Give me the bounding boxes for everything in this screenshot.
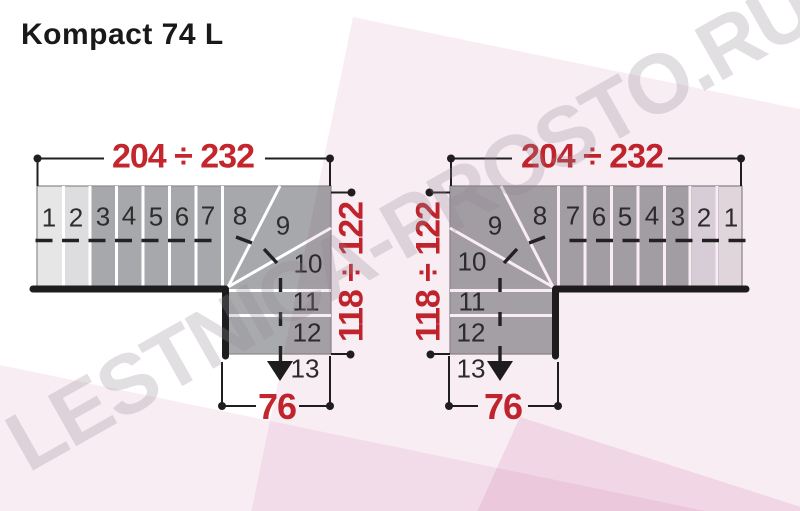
right-step-label-7: 7 <box>566 201 580 232</box>
right-step-label-2: 2 <box>697 203 711 234</box>
left-step-label-3: 3 <box>96 202 110 233</box>
left-height-dimension: 118 ÷ 122 <box>333 202 372 342</box>
dimension-endpoint-dot <box>326 155 334 163</box>
left-width-dimension: 204 ÷ 232 <box>112 138 254 177</box>
dimension-endpoint-dot <box>348 189 356 197</box>
dimension-endpoint-dot <box>326 402 334 410</box>
dimension-endpoint-dot <box>34 155 42 163</box>
left-step-label-7: 7 <box>201 201 215 232</box>
right-step-label-5: 5 <box>618 202 632 233</box>
left-step1-tread <box>37 186 62 287</box>
left-step-label-12: 12 <box>293 318 322 349</box>
left-step-label-4: 4 <box>122 201 136 232</box>
right-step-label-11: 11 <box>459 287 486 318</box>
dimension-endpoint-dot <box>554 402 562 410</box>
left-direction-arrow-icon <box>267 361 293 381</box>
stair-plan-canvas: 1 2 3 4 5 6 7 8 9 10 11 12 13 204 ÷ 232 … <box>0 0 800 511</box>
dimension-endpoint-dot <box>427 351 435 359</box>
left-step2-tread <box>65 186 89 287</box>
left-step-label-11: 11 <box>293 287 320 318</box>
right-step-label-13: 13 <box>457 354 486 385</box>
right-step2-tread <box>692 186 716 287</box>
right-step-label-6: 6 <box>592 202 606 233</box>
left-exit-dimension: 76 <box>258 386 296 428</box>
right-height-dimension: 118 ÷ 122 <box>410 202 449 342</box>
right-direction-arrow-icon <box>487 361 513 381</box>
left-wall-line <box>33 289 226 356</box>
left-step-label-9: 9 <box>276 211 290 242</box>
right-step-label-9: 9 <box>488 211 502 242</box>
right-exit-dimension: 76 <box>484 386 522 428</box>
dimension-endpoint-dot <box>426 189 434 197</box>
left-step-label-10: 10 <box>294 249 323 280</box>
left-step-label-8: 8 <box>233 201 247 232</box>
right-step-label-3: 3 <box>671 202 685 233</box>
page-title: Kompact 74 L <box>21 18 224 52</box>
right-wall-line <box>556 289 747 356</box>
dimension-endpoint-dot <box>218 402 226 410</box>
right-step-label-10: 10 <box>458 247 487 278</box>
left-step-label-1: 1 <box>42 203 56 234</box>
dimension-endpoint-dot <box>447 155 455 163</box>
left-step-label-6: 6 <box>175 202 189 233</box>
dimension-endpoint-dot <box>347 351 355 359</box>
right-step-label-12: 12 <box>457 318 486 349</box>
dimension-endpoint-dot <box>445 402 453 410</box>
left-step-label-13: 13 <box>291 354 320 385</box>
right-step-label-1: 1 <box>724 203 738 234</box>
dimension-endpoint-dot <box>737 155 745 163</box>
left-step-label-5: 5 <box>149 202 163 233</box>
plans-geometry <box>0 0 800 511</box>
left-step-label-2: 2 <box>69 203 83 234</box>
right-step1-tread <box>719 186 742 287</box>
right-width-dimension: 204 ÷ 232 <box>521 138 663 177</box>
right-step-label-4: 4 <box>645 201 659 232</box>
right-step-label-8: 8 <box>533 201 547 232</box>
